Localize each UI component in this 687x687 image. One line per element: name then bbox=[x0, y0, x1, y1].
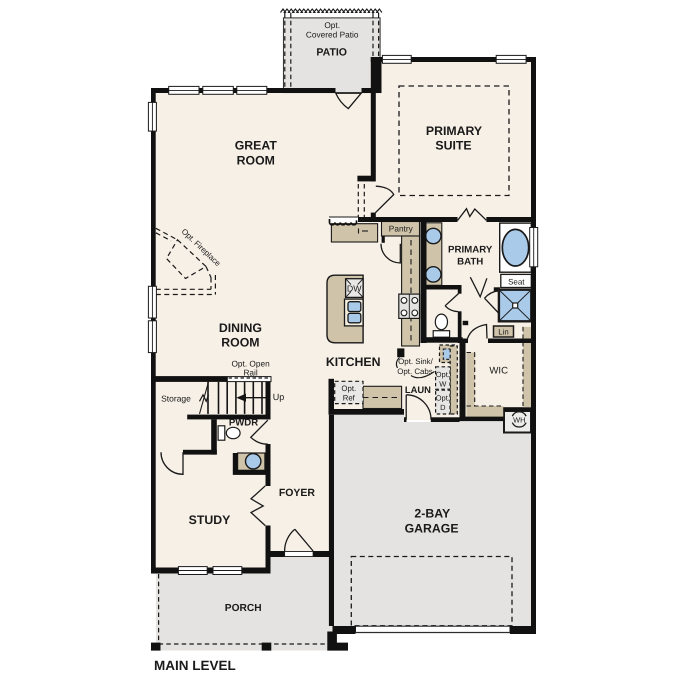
svg-text:GREAT: GREAT bbox=[235, 139, 278, 153]
svg-text:D: D bbox=[440, 403, 446, 412]
svg-text:WH: WH bbox=[513, 415, 525, 424]
svg-text:ROOM: ROOM bbox=[237, 154, 275, 168]
svg-text:Opt. Cabs: Opt. Cabs bbox=[397, 367, 433, 376]
svg-text:Opt.: Opt. bbox=[324, 20, 340, 30]
svg-text:Pantry: Pantry bbox=[389, 224, 414, 234]
svg-text:PRIMARY: PRIMARY bbox=[426, 124, 482, 138]
svg-text:Covered Patio: Covered Patio bbox=[306, 30, 359, 40]
svg-text:Opt.: Opt. bbox=[436, 394, 450, 403]
svg-text:Lin: Lin bbox=[498, 328, 508, 337]
svg-text:Opt. Sink/: Opt. Sink/ bbox=[398, 357, 433, 366]
svg-text:FOYER: FOYER bbox=[279, 487, 316, 499]
svg-text:PATIO: PATIO bbox=[316, 47, 347, 59]
svg-text:PORCH: PORCH bbox=[225, 603, 262, 614]
svg-text:MAIN LEVEL: MAIN LEVEL bbox=[154, 658, 236, 673]
svg-text:Rail: Rail bbox=[243, 367, 257, 377]
svg-text:W: W bbox=[439, 379, 447, 388]
svg-text:2-BAY: 2-BAY bbox=[414, 507, 450, 521]
svg-text:WIC: WIC bbox=[489, 365, 508, 376]
svg-text:DINING: DINING bbox=[219, 321, 262, 335]
svg-text:Storage: Storage bbox=[161, 393, 191, 403]
svg-text:PWDR: PWDR bbox=[229, 418, 258, 429]
svg-text:PRIMARY: PRIMARY bbox=[448, 244, 493, 255]
svg-text:Up: Up bbox=[273, 392, 285, 402]
svg-text:Seat: Seat bbox=[508, 278, 525, 287]
svg-text:BATH: BATH bbox=[457, 256, 483, 267]
svg-text:Opt.: Opt. bbox=[436, 370, 450, 379]
svg-text:STUDY: STUDY bbox=[189, 513, 231, 527]
svg-text:Opt.: Opt. bbox=[341, 384, 356, 393]
svg-text:SUITE: SUITE bbox=[435, 139, 471, 153]
svg-text:ROOM: ROOM bbox=[221, 336, 259, 350]
svg-text:DW: DW bbox=[347, 283, 362, 293]
svg-text:KITCHEN: KITCHEN bbox=[326, 355, 381, 369]
svg-text:GARAGE: GARAGE bbox=[405, 522, 459, 536]
svg-text:LAUN: LAUN bbox=[405, 384, 431, 395]
svg-text:Ref: Ref bbox=[343, 393, 356, 402]
